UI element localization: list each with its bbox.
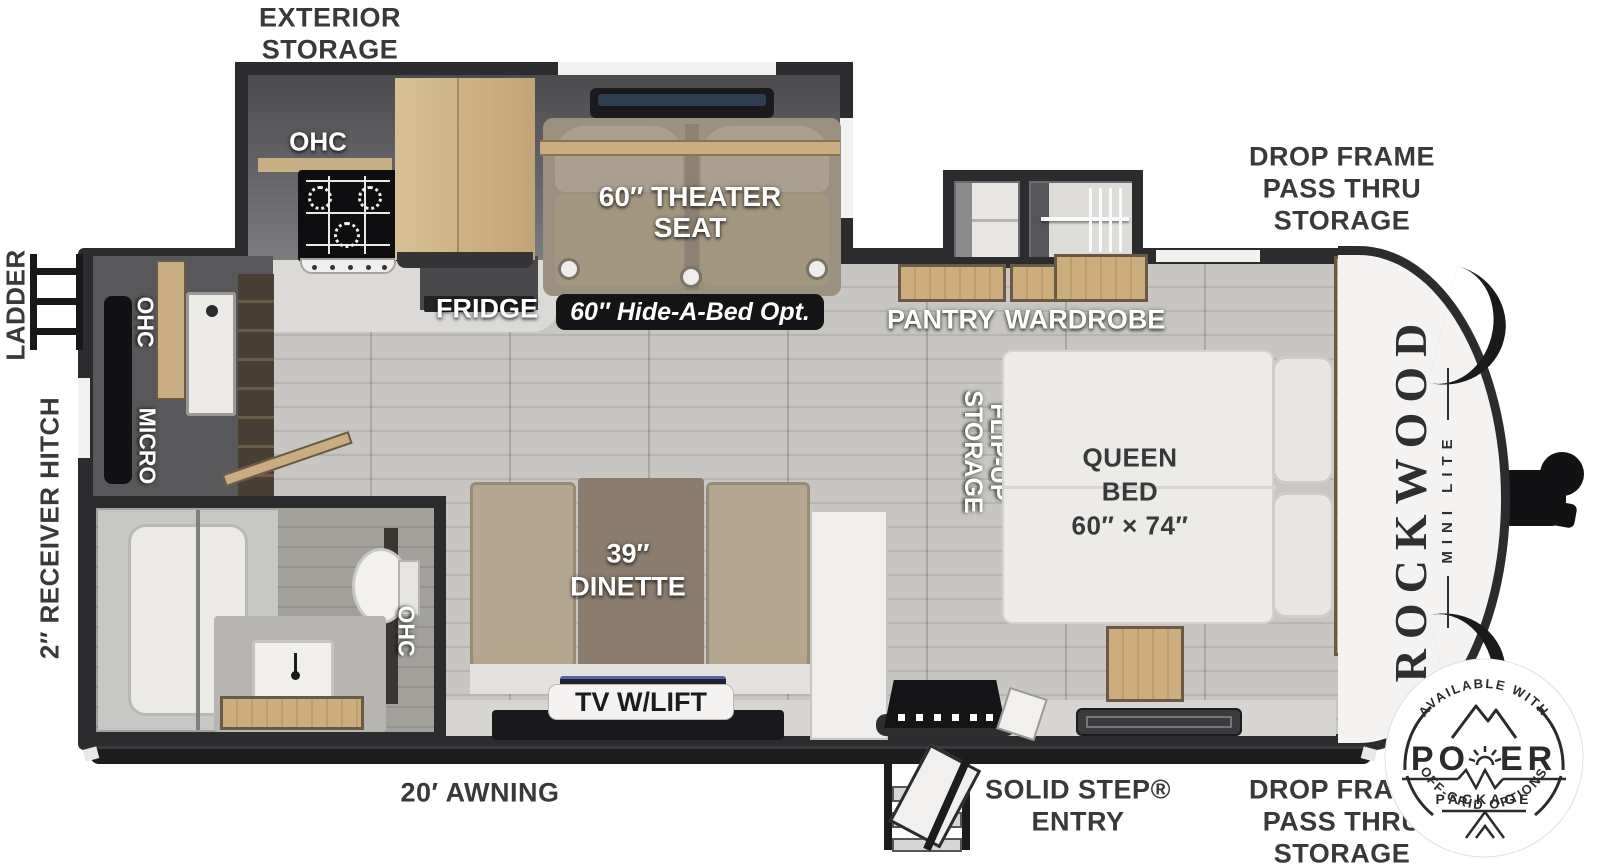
rear-window: [78, 378, 90, 458]
stove-front: [300, 258, 396, 274]
brand-name: ROCKWOOD: [1384, 278, 1437, 718]
power-package-badge: AVAILABLE WITH PO ER PACKAGE OFF-GRID OP…: [1384, 658, 1584, 858]
tv-icon: [590, 88, 774, 118]
cupholder: [558, 258, 580, 280]
pillow: [1272, 356, 1334, 484]
floorplan: EXTERIOR STORAGE DROP FRAME PASS THRU ST…: [0, 0, 1600, 868]
brand-model: MINI LITE: [1439, 432, 1456, 563]
wardrobe-label: WARDROBE: [1005, 305, 1166, 336]
bathroom-ohc-label: OHC: [393, 605, 420, 656]
queen-bed-label-1: QUEEN: [1083, 443, 1178, 474]
solid-step-label-2: ENTRY: [1031, 807, 1124, 838]
griddle-icon: [884, 680, 1006, 728]
vanity-cabinet: [220, 696, 364, 730]
drop-frame-front-label-1: DROP FRAME: [1249, 142, 1435, 173]
solid-step-label-1: SOLID STEP®: [985, 775, 1171, 806]
microwave-icon: [104, 296, 132, 484]
stove-icon: [298, 170, 398, 262]
ladder-label: LADDER: [1, 249, 32, 360]
theater-seat-label-1: 60″ THEATER: [599, 181, 781, 213]
dinette-label-1: 39″: [607, 539, 650, 570]
slideout-window: [558, 62, 776, 75]
kitchen-island: [395, 78, 535, 260]
cabinet-divider: [1020, 181, 1029, 259]
cupholder: [806, 258, 828, 280]
exterior-storage-label-2: STORAGE: [262, 35, 399, 66]
tall-cabinet: [810, 510, 888, 740]
kitchen-ohc-cabinet: [156, 260, 186, 400]
hide-a-bed-label: 60″ Hide-A-Bed Opt.: [570, 298, 810, 327]
dinette-bench-left: [470, 482, 576, 668]
exterior-storage-label-1: EXTERIOR: [259, 3, 401, 34]
kitchen-ohc-label: OHC: [289, 127, 347, 158]
pantry-shelves: [956, 183, 1018, 257]
bedroom-cabinet-top: [1054, 254, 1148, 302]
bedroom-window: [1156, 250, 1260, 262]
kitchen-base-cabinet: [238, 274, 274, 522]
island-edge: [397, 252, 533, 268]
slideout-side-window: [840, 118, 853, 218]
tv-lift-tag: TV W/LIFT: [548, 684, 734, 720]
brand-rule-right: [1447, 368, 1449, 420]
queen-bed-label-2: BED: [1102, 477, 1158, 508]
dinette-bench-right: [706, 482, 810, 668]
micro-label: MICRO: [134, 408, 161, 485]
awning-label: 20′ AWNING: [401, 778, 560, 809]
kitchen-sink: [186, 292, 236, 416]
pantry-ohc: [898, 264, 1006, 302]
wardrobe-rod: [1031, 183, 1132, 257]
dinette-label-2: DINETTE: [570, 572, 686, 603]
tv-lift-label: TV W/LIFT: [575, 687, 707, 718]
receiver-hitch-label: 2″ RECEIVER HITCH: [35, 397, 66, 659]
brand-logo: ROCKWOOD MINI LITE: [1384, 278, 1468, 718]
hide-a-bed-tag: 60″ Hide-A-Bed Opt.: [556, 294, 824, 330]
drop-frame-front-label-3: STORAGE: [1274, 206, 1411, 237]
nightstand: [1106, 626, 1184, 702]
theater-console-shelf: [540, 140, 840, 156]
queen-bed-label-3: 60″ × 74″: [1072, 511, 1189, 542]
pantry-label: PANTRY: [887, 305, 995, 336]
cupholder: [680, 266, 702, 288]
hitch-jack-icon: [1540, 452, 1584, 496]
awning-bar: [90, 746, 1372, 764]
drop-frame-front-label-2: PASS THRU: [1263, 174, 1422, 205]
flip-up-line2: STORAGE: [960, 390, 986, 513]
entry-step-plate: [1076, 708, 1242, 736]
pillow: [1272, 492, 1334, 618]
theater-seat-label-2: SEAT: [654, 212, 727, 244]
brand-rule-left: [1447, 576, 1449, 628]
shower-glass-door: [196, 510, 200, 730]
fridge-label: FRIDGE: [436, 294, 538, 325]
kitchen-wall-ohc-label: OHC: [132, 296, 159, 347]
